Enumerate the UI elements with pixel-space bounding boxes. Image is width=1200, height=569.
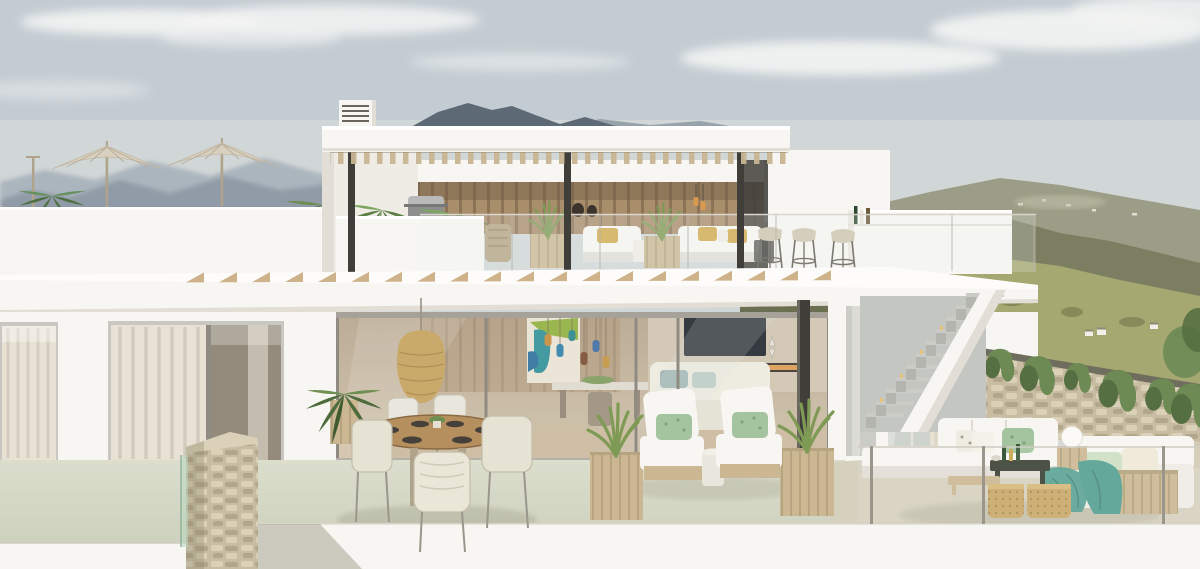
upper-glass-railing (420, 214, 1036, 272)
villa-render (0, 0, 1200, 569)
sun-lounger-2 (716, 385, 782, 478)
right-glass-railing (858, 446, 1200, 524)
glass-fin (181, 455, 188, 547)
pergola-roof (322, 126, 790, 164)
chimney-vent (339, 100, 376, 130)
sun-lounger-1 (640, 387, 704, 480)
scene-svg (0, 0, 1200, 569)
window-1 (0, 322, 58, 463)
